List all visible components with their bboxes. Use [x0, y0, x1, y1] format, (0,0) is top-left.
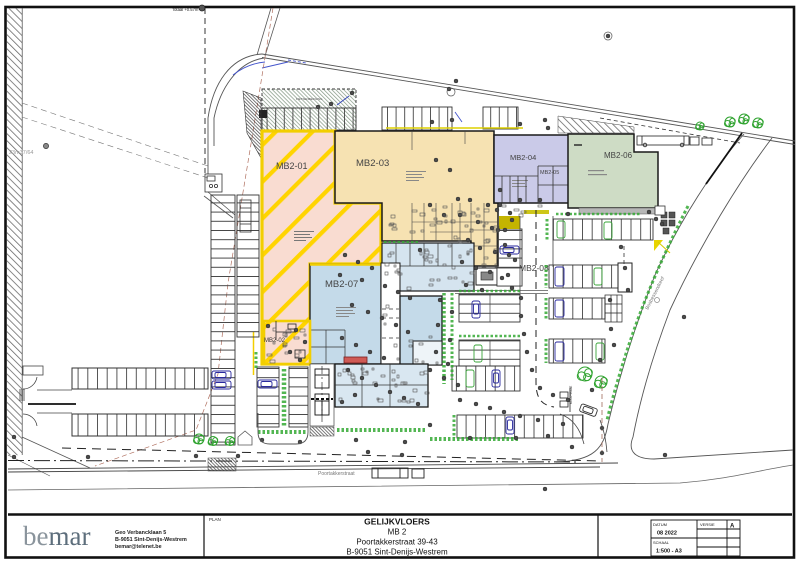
svg-text:bemar: bemar — [23, 521, 90, 551]
svg-text:MB2-06: MB2-06 — [604, 151, 633, 160]
svg-text:bemar@telenet.be: bemar@telenet.be — [115, 544, 162, 550]
svg-text:Totaal +0.57m: Totaal +0.57m — [172, 7, 199, 12]
svg-text:B-9051 Sint-Denijs-Westrem: B-9051 Sint-Denijs-Westrem — [346, 548, 448, 557]
svg-text:MB2-04: MB2-04 — [510, 153, 536, 162]
svg-text:08 2022: 08 2022 — [657, 531, 677, 537]
svg-text:MB2-05: MB2-05 — [540, 170, 559, 176]
svg-text:B-9051 Sint-Denijs-Westrem: B-9051 Sint-Denijs-Westrem — [115, 537, 187, 543]
svg-text:A: A — [730, 524, 735, 530]
svg-text:MB2-07: MB2-07 — [325, 279, 358, 290]
svg-text:Geo Verbancklaan 5: Geo Verbancklaan 5 — [115, 530, 166, 536]
svg-text:MB2-01: MB2-01 — [276, 161, 308, 171]
svg-text:1:500 - A3: 1:500 - A3 — [656, 549, 682, 555]
svg-text:23m37/64: 23m37/64 — [9, 150, 33, 156]
svg-text:FIETSENBERGING: FIETSENBERGING — [296, 97, 323, 101]
svg-text:PLAN: PLAN — [209, 517, 221, 522]
svg-text:GELIJKVLOERS: GELIJKVLOERS — [364, 517, 430, 527]
svg-text:MB 2: MB 2 — [388, 528, 407, 537]
svg-text:Poortakkerstraat: Poortakkerstraat — [318, 471, 355, 477]
svg-text:VERSIE: VERSIE — [700, 522, 715, 527]
svg-text:SCHAAL: SCHAAL — [653, 540, 670, 545]
svg-text:DATUM: DATUM — [653, 522, 667, 527]
svg-text:Poortakkerstraat 39-43: Poortakkerstraat 39-43 — [356, 538, 438, 547]
svg-text:MB2-03: MB2-03 — [356, 158, 389, 169]
